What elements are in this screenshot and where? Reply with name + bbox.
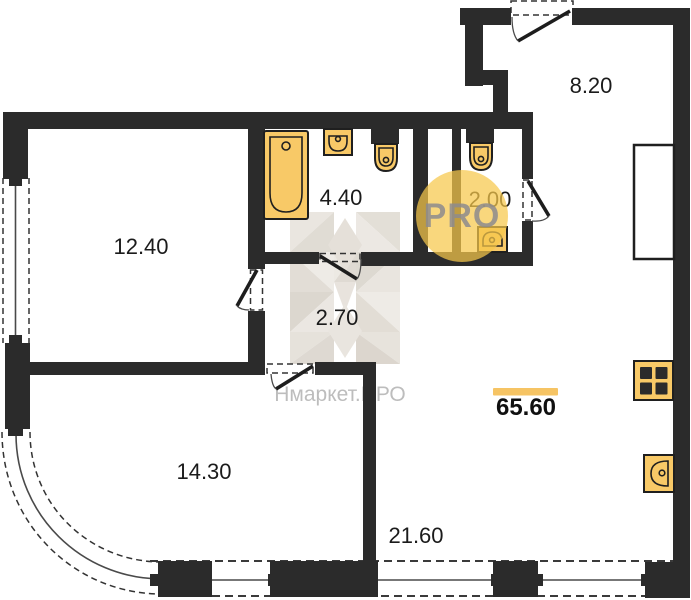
window-tick: [9, 335, 22, 344]
wall-segment: [270, 561, 378, 597]
wall-segment: [645, 562, 690, 598]
door-leaf: [237, 270, 257, 306]
brand-watermark-text: Нмаркет.ПРО: [274, 383, 405, 406]
entry-door: [512, 11, 570, 41]
area-label-kitchen-living: 21.60: [388, 523, 443, 549]
area-label-bedroom: 12.40: [113, 234, 168, 260]
door-swing-arc: [532, 216, 549, 221]
window-outer-dash: [2, 432, 162, 594]
stove-burner: [640, 367, 652, 379]
wall-segment: [493, 70, 508, 113]
window-bottom-facade: [150, 561, 690, 596]
toilet-icon: [466, 127, 494, 170]
wall-segment: [460, 8, 511, 25]
stove-icon: [634, 361, 673, 400]
wall-segment: [5, 343, 30, 429]
wall-segment: [673, 8, 690, 563]
wall-segment: [522, 127, 533, 179]
wall-segment: [363, 362, 376, 562]
window-inner-dash: [30, 432, 162, 562]
area-label-room: 14.30: [176, 459, 231, 485]
floor-plan: Нмаркет.ПРО: [0, 0, 691, 600]
wall-segment: [315, 362, 376, 375]
window-glass: [16, 434, 162, 579]
stove-burner: [656, 367, 668, 379]
door-leaf: [528, 181, 549, 216]
wardrobe-body: [634, 145, 674, 259]
area-label-inner-hall: 2.70: [316, 305, 359, 331]
brand-logo-watermark: [290, 212, 400, 364]
wall-segment: [25, 362, 265, 375]
pro-badge: PRO: [416, 170, 508, 262]
wall-segment: [248, 252, 319, 264]
door-swing-arc: [237, 306, 249, 310]
door-swing-arc: [512, 17, 518, 41]
area-label-entry-hall: 8.20: [570, 73, 613, 99]
pro-badge-text: PRO: [424, 197, 501, 236]
toilet-tank: [466, 127, 494, 143]
wall-segment: [248, 311, 265, 375]
stove-burner: [656, 383, 668, 395]
toilet-icon: [371, 128, 399, 171]
window-tick: [150, 574, 159, 586]
window-left: [3, 177, 29, 344]
wall-segment: [3, 112, 28, 179]
wall-segment: [522, 221, 533, 266]
area-label-bathroom: 4.40: [320, 185, 363, 211]
wall-segment: [493, 561, 538, 597]
bathtub-icon: [264, 131, 308, 219]
total-area-label: 65.60: [496, 394, 556, 422]
wall-segment: [3, 112, 533, 129]
wardrobe: [634, 145, 674, 259]
kitchen-sink-icon: [644, 455, 674, 492]
bedroom-door: [237, 270, 263, 310]
wc-door: [523, 180, 549, 221]
wall-segment: [158, 561, 212, 597]
wall-segment: [248, 112, 265, 269]
wall-segment: [572, 8, 690, 25]
toilet-tank: [371, 128, 399, 144]
washbasin-icon: [324, 129, 352, 155]
window-corner-curved: [2, 427, 162, 594]
stove-burner: [640, 383, 652, 395]
